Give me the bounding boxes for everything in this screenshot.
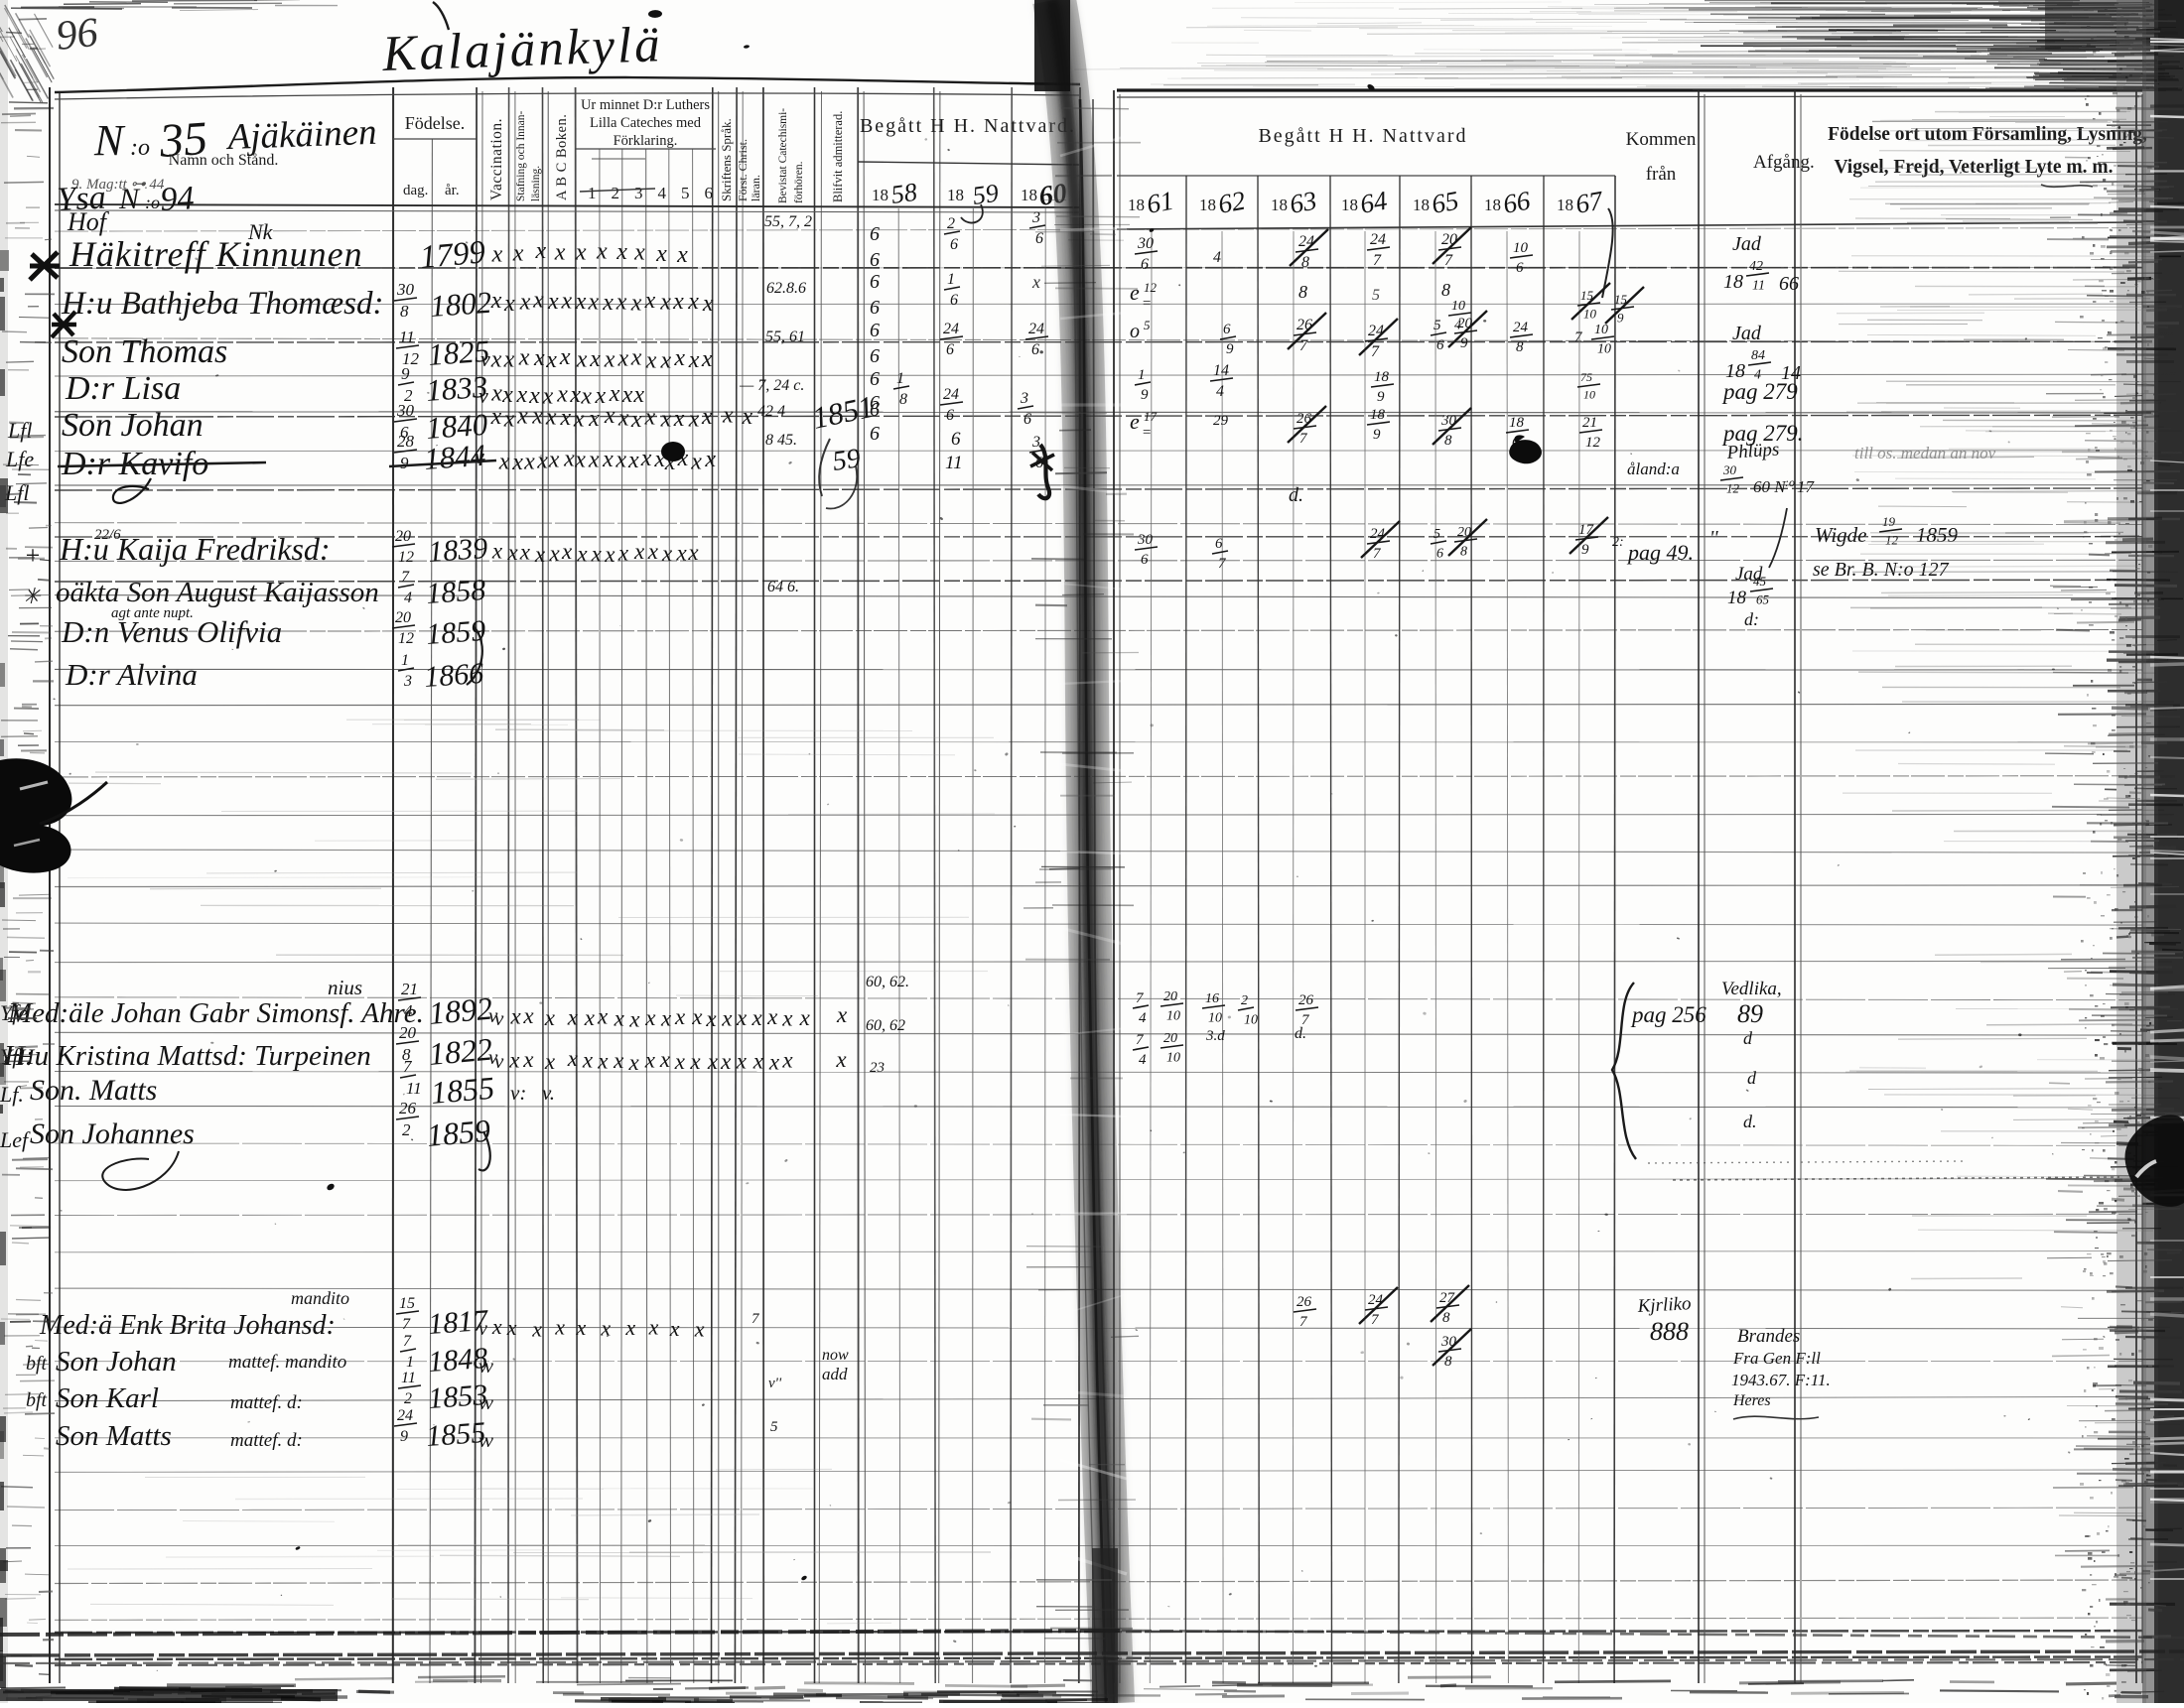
svg-text:16: 16 xyxy=(1205,991,1219,1006)
svg-text:20: 20 xyxy=(395,528,411,545)
svg-text:8 45.: 8 45. xyxy=(765,432,797,449)
svg-text:Bevistat Catechismi-: Bevistat Catechismi- xyxy=(777,108,789,203)
svg-text:15: 15 xyxy=(399,1295,415,1312)
svg-text:x: x xyxy=(672,289,684,315)
svg-text:1866: 1866 xyxy=(423,657,484,694)
svg-text:x: x xyxy=(799,1005,811,1030)
svg-text:8: 8 xyxy=(1460,544,1467,559)
svg-text:55, 61: 55, 61 xyxy=(765,328,805,345)
svg-text:6: 6 xyxy=(951,429,961,450)
svg-text:7: 7 xyxy=(403,1333,412,1350)
svg-text:— 7, 24 c.: — 7, 24 c. xyxy=(739,377,804,394)
svg-text:Med:ä Enk Brita Johansd:: Med:ä Enk Brita Johansd: xyxy=(39,1310,336,1341)
svg-text:3.d: 3.d xyxy=(1205,1028,1225,1044)
svg-text:Son Matts: Son Matts xyxy=(56,1420,172,1452)
svg-text:N: N xyxy=(93,116,126,165)
svg-text:6: 6 xyxy=(1024,411,1031,428)
svg-text:60, 62: 60, 62 xyxy=(866,1017,905,1034)
svg-text:x: x xyxy=(644,405,656,431)
svg-text:x: x xyxy=(545,347,557,373)
svg-text:6: 6 xyxy=(705,184,714,202)
svg-text:8: 8 xyxy=(1444,1354,1452,1370)
svg-text:x: x xyxy=(563,447,575,472)
svg-text:10: 10 xyxy=(1597,341,1611,356)
svg-text:Vaccination.: Vaccination. xyxy=(488,118,505,200)
svg-text:6: 6 xyxy=(870,423,880,445)
svg-text:oäkta Son August Kaijasson: oäkta Son August Kaijasson xyxy=(56,577,379,608)
svg-text:x: x xyxy=(660,348,672,374)
svg-text:x: x xyxy=(628,1050,640,1075)
svg-text:x: x xyxy=(575,289,587,315)
svg-text:x: x xyxy=(624,1315,635,1340)
svg-text:Son. Matts: Son. Matts xyxy=(30,1074,157,1107)
svg-text:9: 9 xyxy=(1460,335,1468,351)
svg-text:1943.67. F:11.: 1943.67. F:11. xyxy=(1731,1371,1831,1389)
svg-text:2: 2 xyxy=(947,215,955,232)
svg-text:18: 18 xyxy=(1484,196,1501,214)
svg-text:89: 89 xyxy=(1737,999,1763,1028)
svg-text:dag.: dag. xyxy=(403,183,428,198)
svg-text:Skriftens Språk.: Skriftens Språk. xyxy=(719,118,734,201)
svg-text:65: 65 xyxy=(1430,186,1461,219)
svg-text:d: d xyxy=(1747,1068,1757,1088)
svg-text:x: x xyxy=(519,290,531,316)
svg-text:x: x xyxy=(506,1315,517,1340)
svg-text:59: 59 xyxy=(971,179,1001,210)
svg-text:18: 18 xyxy=(1413,196,1430,214)
svg-text:x: x xyxy=(511,450,523,475)
svg-text:d.: d. xyxy=(1289,484,1303,506)
svg-text:29: 29 xyxy=(1213,413,1229,429)
svg-text:5: 5 xyxy=(770,1419,778,1435)
svg-text:x: x xyxy=(676,540,688,565)
svg-text:64: 64 xyxy=(1358,186,1390,219)
svg-text:x: x xyxy=(660,406,672,432)
svg-text:10: 10 xyxy=(1583,387,1595,401)
svg-text:x: x xyxy=(490,288,502,314)
svg-text:x: x xyxy=(630,407,642,433)
svg-text:v: v xyxy=(475,444,484,468)
svg-text:9: 9 xyxy=(1373,427,1381,443)
svg-text:x: x xyxy=(705,1006,717,1031)
svg-text:10: 10 xyxy=(1594,323,1608,337)
svg-text:till os. medan an nov: till os. medan an nov xyxy=(1854,444,1996,462)
svg-text:A B C Boken.: A B C Boken. xyxy=(554,114,570,200)
svg-text:24: 24 xyxy=(1370,526,1386,542)
svg-text:888: 888 xyxy=(1650,1317,1689,1346)
svg-text:v: v xyxy=(494,1006,504,1030)
svg-text:4: 4 xyxy=(1139,1052,1147,1068)
svg-text:18: 18 xyxy=(1557,196,1573,214)
svg-text:5: 5 xyxy=(1433,318,1441,333)
svg-text:H:u Kaija Fredriksd:: H:u Kaija Fredriksd: xyxy=(59,531,331,567)
svg-text:x: x xyxy=(561,288,573,314)
svg-text:x: x xyxy=(547,289,559,315)
svg-text:x: x xyxy=(597,1049,609,1074)
svg-text:x: x xyxy=(673,345,685,371)
svg-text:4: 4 xyxy=(404,1001,413,1020)
svg-text:Begått H H. Nattvard.: Begått H H. Nattvard. xyxy=(860,115,1076,137)
svg-text:x: x xyxy=(602,447,614,472)
svg-text:9: 9 xyxy=(1581,542,1589,558)
svg-text:x: x xyxy=(752,1048,764,1073)
svg-text:pag 49.: pag 49. xyxy=(1626,540,1694,565)
svg-text:6: 6 xyxy=(1141,552,1149,568)
svg-text:x: x xyxy=(614,1006,625,1031)
svg-text:x: x xyxy=(559,344,571,370)
svg-text:x: x xyxy=(584,1005,596,1030)
svg-text:10: 10 xyxy=(1244,1012,1258,1027)
svg-text:x: x xyxy=(644,1005,656,1030)
svg-text:24: 24 xyxy=(943,386,959,403)
svg-text:Kalajänkylä: Kalajänkylä xyxy=(380,17,663,82)
svg-text:6: 6 xyxy=(870,271,880,293)
svg-text:Ur minnet D:r Luthers: Ur minnet D:r Luthers xyxy=(581,97,710,113)
svg-text:2: 2 xyxy=(1241,993,1248,1008)
svg-text:4: 4 xyxy=(404,590,412,606)
svg-text:v: v xyxy=(484,1430,493,1452)
svg-text:66: 66 xyxy=(1501,186,1533,219)
svg-text:x: x xyxy=(751,1005,763,1030)
svg-text:x: x xyxy=(573,406,585,432)
svg-text:x: x xyxy=(569,382,581,408)
svg-text:x: x xyxy=(491,1314,502,1339)
svg-text:1858: 1858 xyxy=(425,574,486,610)
svg-text:x: x xyxy=(554,239,566,265)
svg-text:24: 24 xyxy=(1028,321,1044,337)
svg-text:Först. Christ.: Först. Christ. xyxy=(736,139,750,201)
svg-text:6: 6 xyxy=(870,320,880,341)
svg-text:5: 5 xyxy=(1433,527,1440,542)
svg-text:Förklaring.: Förklaring. xyxy=(614,133,678,149)
svg-text:x: x xyxy=(781,1005,793,1030)
svg-text:x: x xyxy=(676,242,688,268)
svg-text:26: 26 xyxy=(1297,317,1312,333)
svg-text:24: 24 xyxy=(1298,233,1314,250)
svg-text:x: x xyxy=(548,448,560,473)
svg-text:se Br. B. N:o 127: se Br. B. N:o 127 xyxy=(1813,559,1950,581)
svg-text:x: x xyxy=(628,1007,640,1032)
svg-text:6: 6 xyxy=(1031,341,1039,358)
svg-text:x: x xyxy=(617,346,629,372)
svg-text:x: x xyxy=(523,450,535,475)
svg-text:6: 6 xyxy=(870,223,880,245)
svg-text:x: x xyxy=(691,1004,703,1029)
svg-text:x: x xyxy=(647,539,659,564)
svg-text::o: :o xyxy=(1785,475,1795,489)
svg-text:x: x xyxy=(687,540,699,565)
svg-text:x: x xyxy=(689,1049,701,1074)
svg-text:x: x xyxy=(507,540,519,565)
svg-text:v: v xyxy=(494,1049,504,1073)
svg-text:6: 6 xyxy=(1141,256,1149,273)
svg-text:2: 2 xyxy=(612,184,620,202)
svg-text:x: x xyxy=(519,540,531,565)
svg-text:x: x xyxy=(604,403,615,429)
svg-text:x: x xyxy=(645,348,657,374)
svg-text:v.: v. xyxy=(542,1081,555,1105)
svg-text:x: x xyxy=(613,1048,624,1073)
svg-text:1: 1 xyxy=(588,184,597,202)
svg-text:x: x xyxy=(549,541,561,566)
svg-text:24: 24 xyxy=(1368,1292,1384,1308)
svg-text:12: 12 xyxy=(1885,532,1899,547)
svg-text:30: 30 xyxy=(1440,413,1457,429)
svg-text:x: x xyxy=(655,241,667,267)
svg-text:x: x xyxy=(687,289,699,315)
svg-text:30: 30 xyxy=(396,280,415,299)
svg-text:8: 8 xyxy=(400,302,409,321)
svg-text:x: x xyxy=(604,346,615,372)
svg-text:7: 7 xyxy=(1444,252,1453,269)
svg-text:bft: bft xyxy=(26,1389,48,1411)
svg-text:1: 1 xyxy=(406,1354,414,1371)
svg-text:30: 30 xyxy=(1137,235,1154,252)
svg-text:x: x xyxy=(690,449,702,474)
svg-text:11: 11 xyxy=(399,328,415,346)
svg-text:1: 1 xyxy=(401,652,409,669)
svg-text:6: 6 xyxy=(946,341,954,358)
svg-text:19: 19 xyxy=(1882,514,1896,529)
svg-text:1859: 1859 xyxy=(425,1113,491,1153)
svg-text:62.8.6: 62.8.6 xyxy=(766,280,806,297)
svg-text:x: x xyxy=(640,446,652,471)
svg-text:x: x xyxy=(597,1004,609,1029)
svg-text:x: x xyxy=(576,1315,587,1340)
svg-text:Son Johan: Son Johan xyxy=(56,1346,177,1378)
svg-text:x: x xyxy=(518,344,530,370)
svg-text:9: 9 xyxy=(1226,341,1234,357)
svg-text:Stafning och Innan-: Stafning och Innan- xyxy=(515,110,527,201)
svg-text:d.: d. xyxy=(1743,1112,1757,1131)
svg-text:x: x xyxy=(1031,272,1040,292)
svg-text:18: 18 xyxy=(1271,196,1288,214)
svg-text:d:: d: xyxy=(1744,609,1759,629)
svg-text:17: 17 xyxy=(1797,477,1816,496)
svg-text:28: 28 xyxy=(397,432,415,451)
svg-text:x: x xyxy=(633,539,645,564)
svg-text:6: 6 xyxy=(950,292,958,309)
svg-text:42: 42 xyxy=(1749,259,1763,274)
svg-text:30: 30 xyxy=(1440,1334,1457,1350)
svg-text:Heres: Heres xyxy=(1732,1392,1771,1409)
svg-text:x: x xyxy=(660,1005,672,1030)
svg-text:7: 7 xyxy=(1373,252,1382,269)
svg-text:x: x xyxy=(644,1047,656,1072)
svg-text:x: x xyxy=(688,347,700,373)
svg-text:d: d xyxy=(1743,1028,1753,1048)
svg-text:18: 18 xyxy=(1199,196,1216,214)
svg-text::o: :o xyxy=(130,135,150,161)
svg-text:v'': v'' xyxy=(768,1376,782,1391)
svg-text:17: 17 xyxy=(1144,409,1158,424)
svg-text:7: 7 xyxy=(402,1316,411,1333)
svg-text:1822: 1822 xyxy=(427,1031,493,1072)
svg-text:Lilla Cateches med: Lilla Cateches med xyxy=(590,115,702,131)
svg-text:Födelse.: Födelse. xyxy=(405,113,466,133)
svg-text:v: v xyxy=(480,346,490,371)
svg-text:30: 30 xyxy=(1137,532,1154,548)
svg-text:26: 26 xyxy=(1297,1294,1312,1310)
svg-text:2: 2 xyxy=(402,1120,411,1139)
svg-text:24: 24 xyxy=(943,321,959,337)
svg-text:x: x xyxy=(621,382,633,408)
svg-text:11: 11 xyxy=(406,1079,422,1098)
svg-text:18: 18 xyxy=(872,186,888,204)
svg-text:1: 1 xyxy=(896,370,904,387)
svg-text:8: 8 xyxy=(1298,282,1307,302)
svg-text:x: x xyxy=(648,1315,659,1340)
svg-text:24: 24 xyxy=(397,1407,413,1424)
svg-text:v: v xyxy=(478,1318,487,1340)
svg-text:x: x xyxy=(591,542,603,567)
svg-text:18: 18 xyxy=(1021,186,1037,204)
svg-text:x: x xyxy=(602,290,614,316)
svg-text:v:: v: xyxy=(510,1081,526,1105)
svg-text:H:u Bathjeba Thomæsd:: H:u Bathjeba Thomæsd: xyxy=(61,286,384,322)
svg-text:12: 12 xyxy=(1726,480,1740,495)
svg-text:8: 8 xyxy=(899,391,907,408)
svg-text:åland:a: åland:a xyxy=(1627,460,1680,478)
svg-text:x: x xyxy=(688,407,700,433)
svg-text:x: x xyxy=(674,1049,686,1074)
svg-text:x: x xyxy=(498,449,510,474)
svg-text:x: x xyxy=(707,1049,719,1074)
svg-text:x: x xyxy=(702,291,714,317)
svg-text:x: x xyxy=(510,1003,522,1028)
svg-text:Jad: Jad xyxy=(1732,323,1762,344)
svg-text:3: 3 xyxy=(1031,434,1040,451)
svg-text:10: 10 xyxy=(1166,1008,1180,1023)
svg-text:+: + xyxy=(24,541,42,570)
svg-text:Son Thomas: Son Thomas xyxy=(62,333,227,370)
svg-text:x: x xyxy=(721,1006,733,1031)
svg-text:61: 61 xyxy=(1145,186,1176,219)
svg-text:x: x xyxy=(704,447,716,472)
svg-text:66: 66 xyxy=(1779,273,1799,295)
svg-text:x: x xyxy=(522,1003,534,1028)
svg-text:27: 27 xyxy=(1439,1290,1456,1306)
svg-text:Jad: Jad xyxy=(1732,233,1762,255)
svg-text:x: x xyxy=(490,381,502,407)
svg-text:x: x xyxy=(588,406,600,432)
svg-text:3: 3 xyxy=(403,673,412,690)
svg-text:x: x xyxy=(574,447,586,472)
svg-text:nius: nius xyxy=(328,976,362,999)
svg-text:18: 18 xyxy=(1509,415,1525,431)
svg-text:x: x xyxy=(674,1004,686,1029)
svg-text::o: :o xyxy=(145,193,160,212)
svg-text:x: x xyxy=(535,238,547,264)
svg-text:x: x xyxy=(490,404,502,430)
svg-text:5: 5 xyxy=(681,184,690,202)
svg-text:x: x xyxy=(630,290,642,316)
svg-text:x: x xyxy=(781,1047,793,1072)
svg-text:Son Johan: Son Johan xyxy=(62,407,204,444)
svg-text:v: v xyxy=(484,1392,493,1414)
svg-text:58: 58 xyxy=(889,178,919,209)
svg-text:x: x xyxy=(575,240,587,266)
svg-text:6: 6 xyxy=(870,249,880,271)
svg-text:Lfe: Lfe xyxy=(5,447,34,471)
svg-text:20: 20 xyxy=(399,1023,417,1042)
svg-text:6: 6 xyxy=(870,368,880,390)
svg-text:84: 84 xyxy=(1751,348,1765,363)
svg-text:1: 1 xyxy=(1138,367,1146,383)
svg-text:x: x xyxy=(512,240,524,266)
svg-text:D:r Lisa: D:r Lisa xyxy=(65,370,181,407)
svg-text:Vedlika,: Vedlika, xyxy=(1721,979,1782,999)
svg-text:6: 6 xyxy=(946,407,954,424)
svg-text:14: 14 xyxy=(1213,362,1229,379)
svg-text:x: x xyxy=(516,404,528,430)
svg-text:x: x xyxy=(561,539,573,564)
svg-text:1859: 1859 xyxy=(1916,523,1959,547)
svg-text:64 6.: 64 6. xyxy=(767,579,799,595)
svg-text:d.: d. xyxy=(1295,1025,1306,1042)
svg-text:1892: 1892 xyxy=(427,990,493,1031)
svg-text:18: 18 xyxy=(1128,196,1145,214)
svg-text:9: 9 xyxy=(400,1428,408,1445)
svg-text:x: x xyxy=(554,1314,565,1339)
svg-text:x: x xyxy=(615,239,627,265)
svg-text:96: 96 xyxy=(54,10,100,60)
svg-text:x: x xyxy=(531,1317,542,1342)
svg-text:x: x xyxy=(617,405,629,431)
svg-text:x: x xyxy=(614,448,626,473)
svg-text:x: x xyxy=(659,289,671,315)
svg-text:Afgång.: Afgång. xyxy=(1753,152,1815,173)
svg-text:v: v xyxy=(484,1356,493,1378)
svg-text:x: x xyxy=(835,1047,847,1072)
svg-text:Kommen: Kommen xyxy=(1626,129,1697,150)
svg-text:24: 24 xyxy=(1368,323,1384,339)
svg-text:x: x xyxy=(742,404,753,430)
svg-text:8: 8 xyxy=(1442,1310,1450,1326)
svg-text:6: 6 xyxy=(1436,546,1443,561)
svg-text:H:u Kristina Mattsd: Turpein: H:u Kristina Mattsd: Turpeinen xyxy=(3,1040,371,1072)
svg-text:x: x xyxy=(501,382,513,408)
svg-text:x: x xyxy=(766,1004,778,1029)
svg-text:4: 4 xyxy=(1216,383,1224,400)
svg-text:bft: bft xyxy=(26,1353,48,1375)
svg-text:23: 23 xyxy=(870,1060,885,1076)
svg-text:11: 11 xyxy=(1752,278,1765,293)
svg-text:x: x xyxy=(534,542,546,567)
svg-text:år.: år. xyxy=(445,183,460,198)
svg-text:24: 24 xyxy=(1370,231,1386,248)
svg-text:x: x xyxy=(701,404,713,430)
svg-text:x: x xyxy=(673,406,685,432)
svg-text:6: 6 xyxy=(1516,260,1524,276)
svg-text:4: 4 xyxy=(658,184,667,202)
svg-text:12: 12 xyxy=(398,549,414,566)
svg-text:18: 18 xyxy=(947,186,964,204)
svg-text:x: x xyxy=(736,1048,748,1073)
svg-text:8: 8 xyxy=(1301,254,1309,271)
svg-text:1855: 1855 xyxy=(429,1070,495,1111)
svg-text:17: 17 xyxy=(1578,522,1595,538)
svg-text:Wigde: Wigde xyxy=(1815,523,1867,547)
svg-text:mandito: mandito xyxy=(291,1288,349,1308)
svg-text:Kjrliko: Kjrliko xyxy=(1636,1293,1692,1317)
svg-text:x: x xyxy=(508,1048,520,1073)
svg-text:x: x xyxy=(544,1005,556,1030)
svg-text:26: 26 xyxy=(1298,992,1314,1008)
svg-text:Begått H H. Nattvard: Begått H H. Nattvard xyxy=(1258,125,1467,147)
svg-text:Son Johannes: Son Johannes xyxy=(30,1117,195,1150)
svg-text:26: 26 xyxy=(1297,411,1312,427)
